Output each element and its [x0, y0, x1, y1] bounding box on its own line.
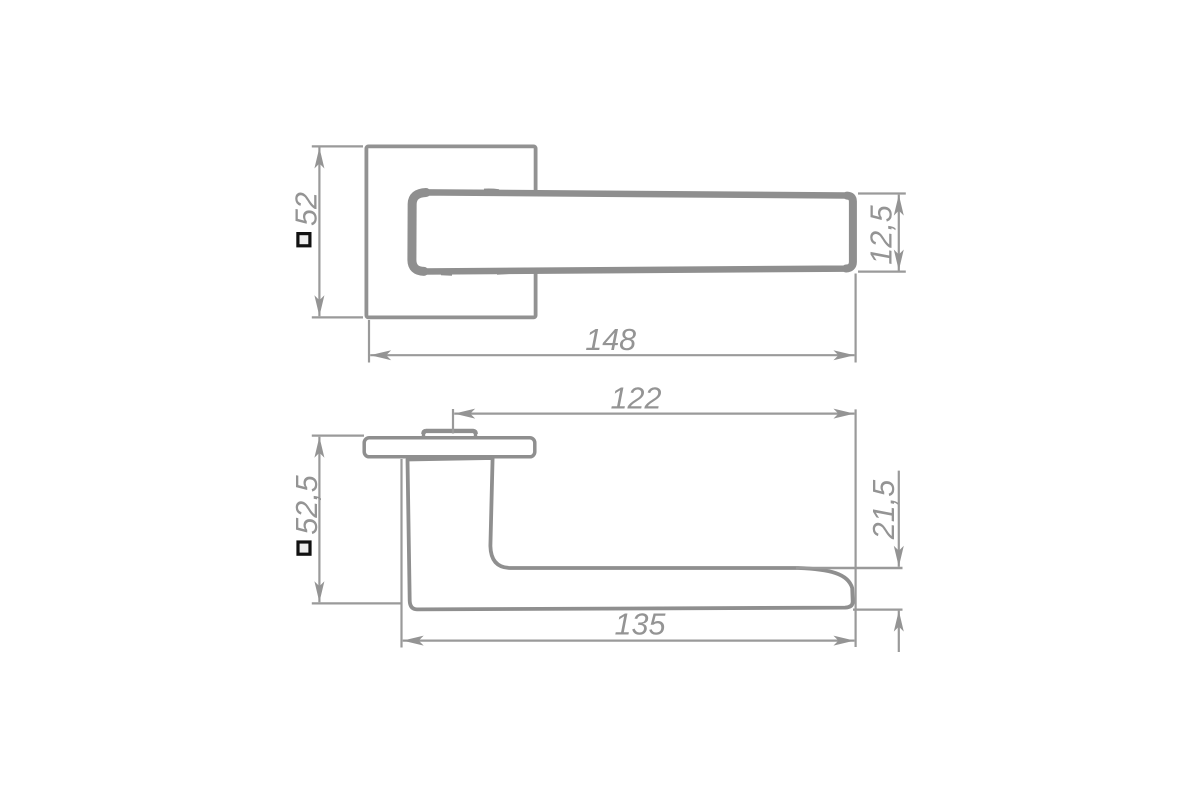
svg-text:52,5: 52,5 [290, 474, 324, 534]
svg-text:12,5: 12,5 [865, 204, 899, 264]
svg-text:135: 135 [615, 608, 667, 642]
svg-text:52: 52 [290, 192, 324, 226]
svg-text:148: 148 [585, 323, 636, 357]
svg-text:21,5: 21,5 [867, 479, 901, 540]
svg-text:122: 122 [611, 382, 662, 416]
